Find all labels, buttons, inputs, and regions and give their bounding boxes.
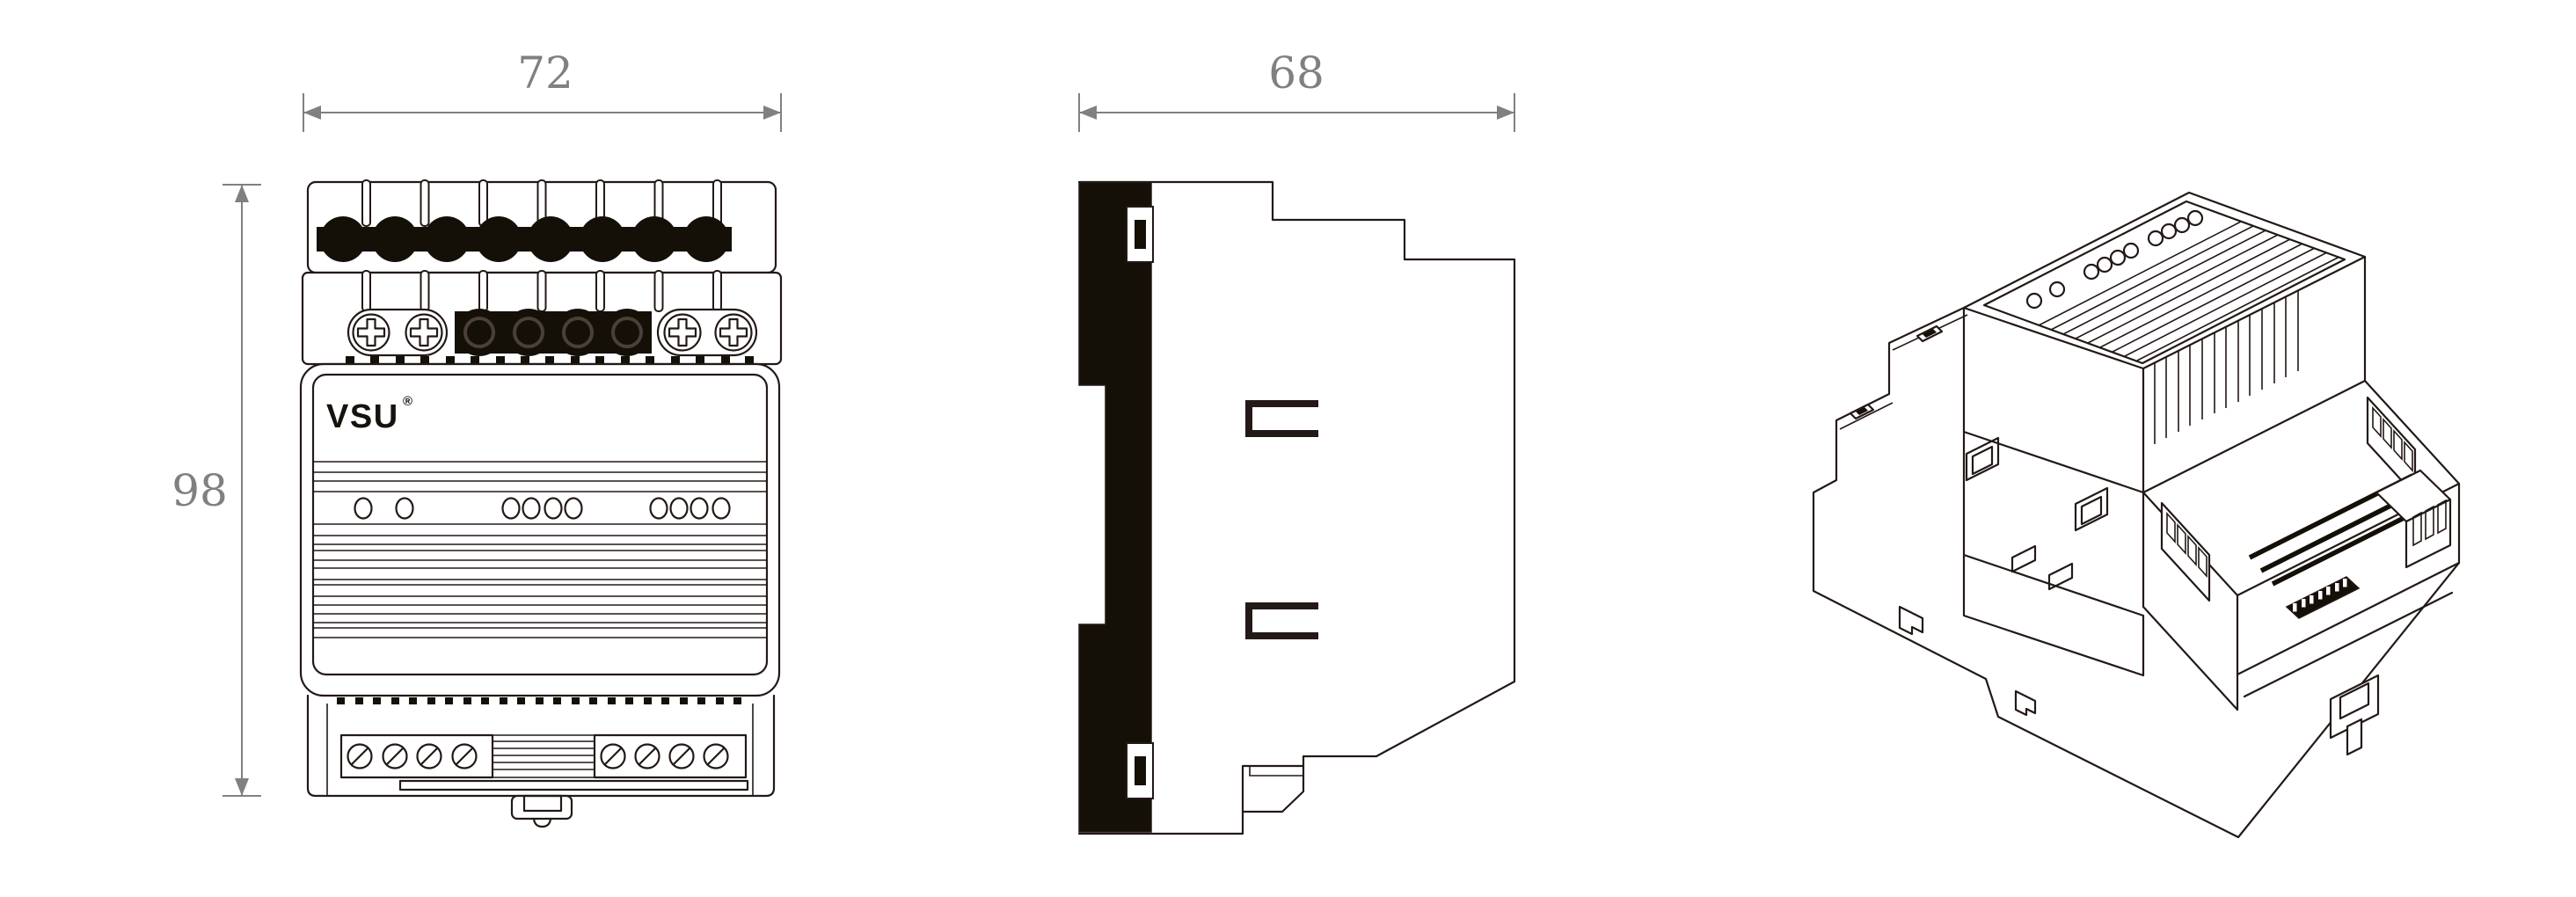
front-dotted-separator-bottom bbox=[337, 697, 741, 704]
front-din-clip bbox=[512, 796, 572, 827]
side-mount-brackets bbox=[1249, 404, 1318, 636]
brand-registered-mark: ® bbox=[403, 394, 412, 409]
front-io-black-terminals bbox=[455, 309, 652, 356]
isometric-view bbox=[1813, 193, 2459, 837]
brand-logo: VSU bbox=[326, 398, 399, 435]
front-orthographic-view: VSU ® bbox=[301, 180, 781, 827]
front-height-label: 98 bbox=[171, 465, 228, 516]
front-width-label: 72 bbox=[517, 47, 573, 98]
technical-drawing-canvas: 72 98 68 bbox=[0, 0, 2576, 897]
dimension-side-depth: 68 bbox=[1079, 47, 1514, 132]
front-io-terminal-row bbox=[303, 271, 781, 364]
dimension-front-height: 98 bbox=[171, 185, 261, 796]
side-depth-label: 68 bbox=[1268, 47, 1324, 98]
front-top-terminal-row bbox=[308, 180, 776, 273]
front-body-panel: VSU ® bbox=[301, 364, 779, 696]
side-profile-view bbox=[1079, 182, 1514, 834]
technical-drawing-page: 72 98 68 bbox=[0, 0, 2576, 897]
side-rail-column bbox=[1079, 182, 1151, 832]
front-lower-terminal-strip bbox=[308, 696, 774, 796]
dimension-front-width: 72 bbox=[303, 47, 781, 132]
side-din-clip bbox=[1243, 766, 1303, 812]
